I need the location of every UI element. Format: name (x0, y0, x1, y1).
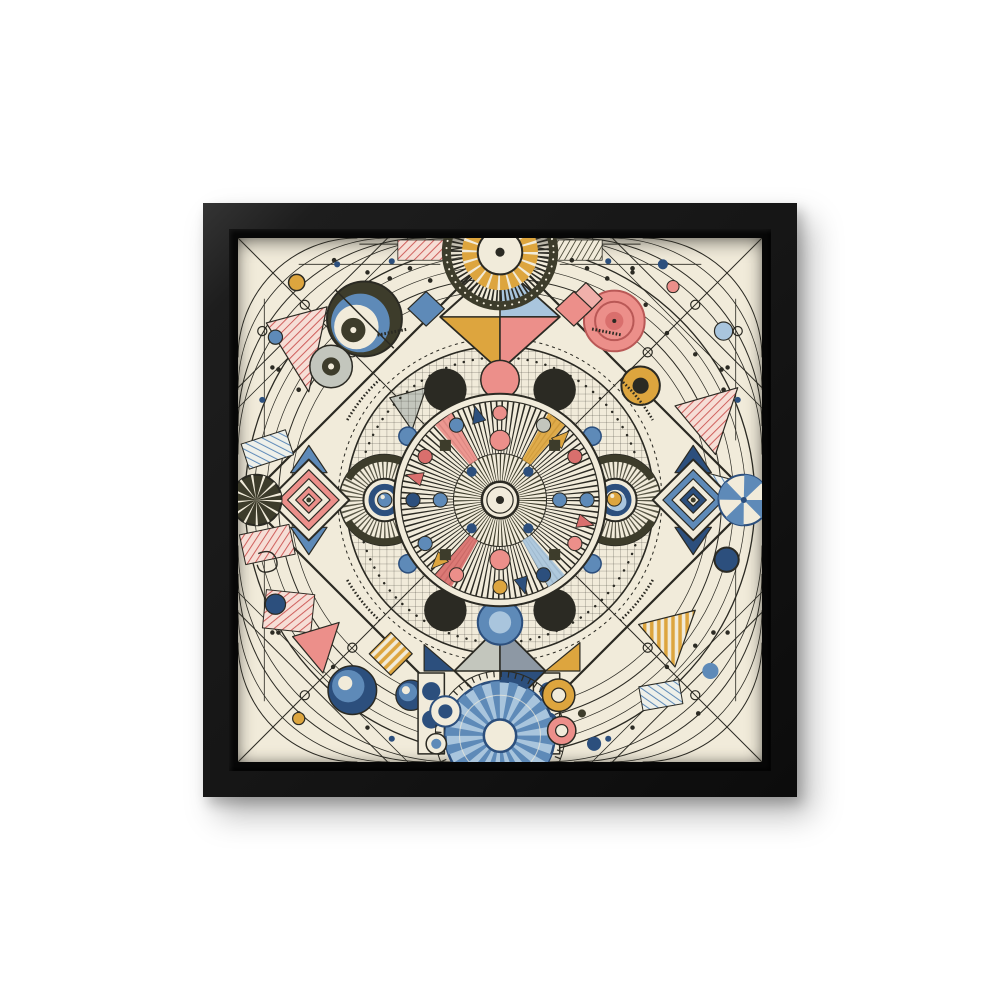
canvas-print (238, 238, 762, 762)
moon-eye-motif (327, 281, 402, 356)
bottom-wheel (426, 671, 601, 762)
picture-frame (203, 203, 797, 797)
pinwheel-left (238, 475, 281, 526)
frame-inner-gap (229, 229, 771, 771)
pinwheel-right (719, 475, 762, 526)
wall-background (0, 0, 1000, 1000)
gray-target-motif (310, 345, 352, 387)
mandala-artwork (238, 238, 762, 762)
